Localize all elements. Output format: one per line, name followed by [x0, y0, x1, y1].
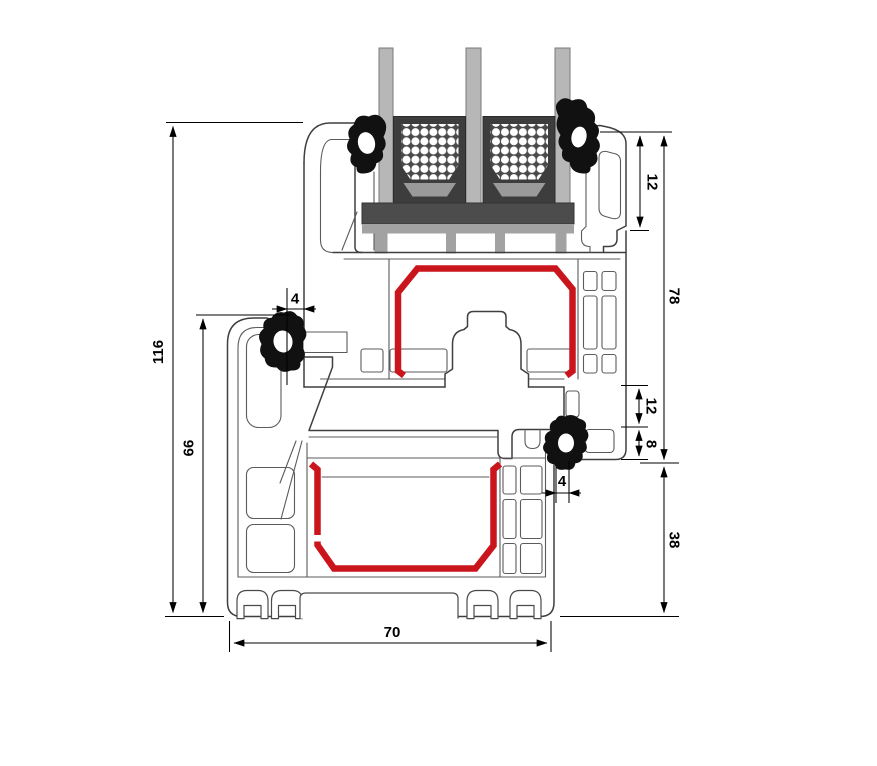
- sash-bottom-chamber: [361, 349, 383, 372]
- sash-bottom-chamber: [527, 349, 571, 372]
- glazing-bridge-tab: [446, 233, 456, 254]
- dimension-label: 116: [150, 340, 167, 364]
- dim-overlap: 8: [621, 431, 660, 460]
- glazing-block: [362, 203, 574, 224]
- gasket-hole: [558, 434, 574, 453]
- dimension-label: 78: [666, 288, 683, 305]
- sash-right-chamber: [584, 355, 598, 374]
- sash-right-chamber: [584, 296, 598, 349]
- dim-frame-lower-section: 38: [560, 467, 683, 617]
- glazing-unit: [362, 48, 574, 254]
- glazing-bridge: [362, 224, 574, 234]
- dimension-label: 12: [643, 398, 660, 415]
- dimension-label: 4: [291, 291, 300, 308]
- dim-profile-depth: 70: [230, 621, 552, 652]
- glazing-bridge-tab: [556, 233, 567, 254]
- dimension-label: 8: [643, 440, 660, 448]
- technical-drawing-svg: 116 66 4 12 78 12: [0, 0, 877, 766]
- spacer-bar-2: [483, 117, 555, 204]
- spacer-bar-1: [394, 117, 466, 204]
- dimension-label: 66: [181, 440, 198, 457]
- dimension-label: 38: [666, 532, 683, 549]
- sash-hardware-groove: [445, 312, 529, 388]
- sash-top-left-outer: [304, 123, 354, 163]
- sash-left-wall-inner: [321, 172, 334, 253]
- dimension-label: 12: [644, 174, 661, 191]
- dimension-label: 70: [384, 624, 401, 641]
- sash-steel-chamber-walls: [389, 259, 578, 379]
- glass-pane-2: [466, 48, 481, 228]
- dim-glazing-edge-cover: 12: [600, 132, 672, 231]
- sash-left-slot: [304, 332, 347, 353]
- sash-right-chamber: [602, 296, 616, 349]
- sash-right-chamber: [585, 430, 614, 453]
- sash-right-chamber: [584, 272, 598, 291]
- dimension-label: 4: [558, 473, 567, 490]
- dim-rebate-step: 12: [621, 386, 660, 428]
- sash-right-chamber: [602, 272, 616, 291]
- sash-steel-bracket: [398, 269, 573, 376]
- glazing-bridge-tab: [375, 233, 388, 254]
- drawing-canvas: 116 66 4 12 78 12: [0, 0, 877, 766]
- steel-joint-gap: [313, 535, 322, 542]
- sash-right-chamber: [602, 355, 616, 374]
- glazing-bridge-tab: [495, 233, 505, 254]
- frame-bottom-recess: [300, 593, 458, 619]
- sash-right-chamber: [566, 391, 579, 417]
- bead-chamber: [599, 151, 621, 218]
